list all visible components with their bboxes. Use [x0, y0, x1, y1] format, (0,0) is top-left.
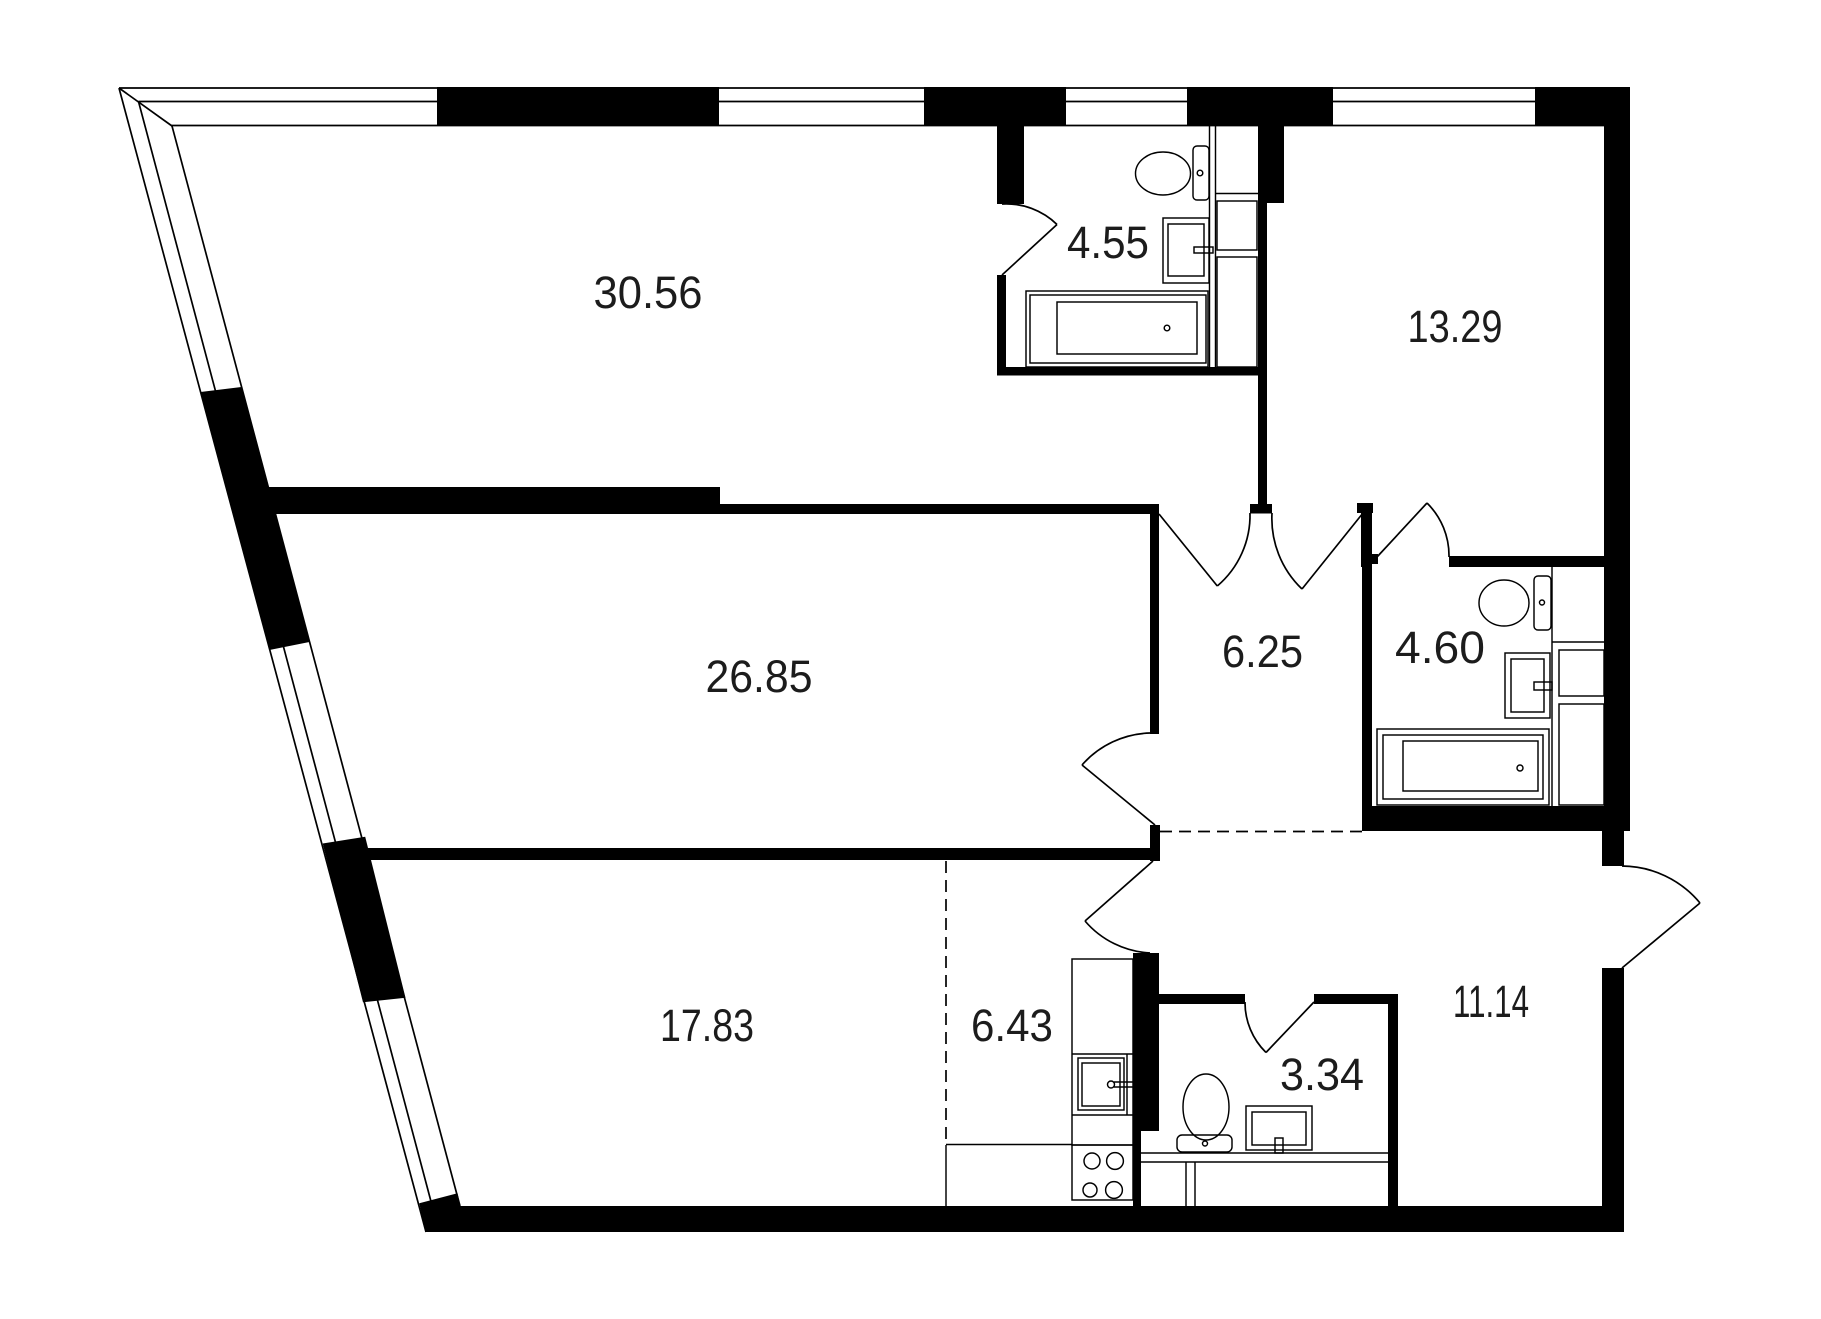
svg-text:4.60: 4.60 [1395, 622, 1485, 673]
svg-text:6.25: 6.25 [1222, 626, 1303, 677]
svg-text:30.56: 30.56 [594, 267, 703, 318]
svg-text:6.43: 6.43 [971, 1000, 1053, 1051]
svg-text:4.55: 4.55 [1067, 217, 1149, 268]
svg-text:11.14: 11.14 [1453, 976, 1529, 1027]
svg-text:26.85: 26.85 [706, 651, 813, 702]
svg-text:3.34: 3.34 [1280, 1049, 1364, 1100]
svg-text:13.29: 13.29 [1408, 301, 1503, 352]
svg-text:17.83: 17.83 [660, 1000, 754, 1051]
